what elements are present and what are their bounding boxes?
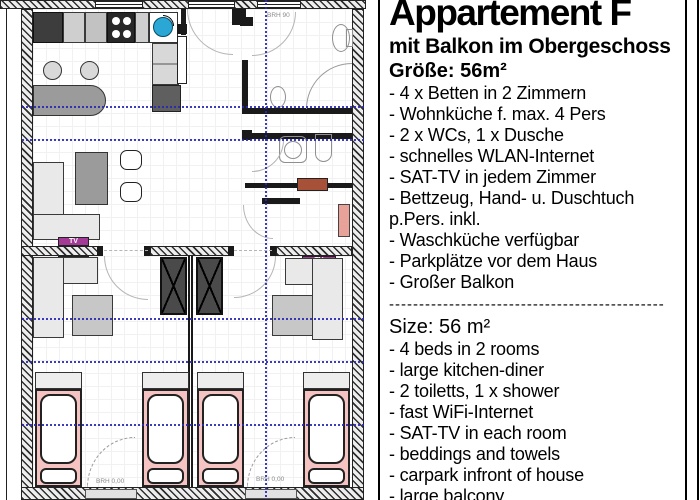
apartment-listing-image: TV TV TV bbox=[0, 0, 700, 500]
kitchen-sink bbox=[149, 12, 178, 43]
exterior-wall-bottom bbox=[21, 487, 364, 500]
bathroom-wall bbox=[245, 183, 297, 188]
bench bbox=[297, 178, 328, 191]
roof-guide-line bbox=[22, 318, 364, 320]
separator-line: ----------------------------------------… bbox=[389, 295, 679, 315]
kitchen-counter bbox=[135, 12, 149, 43]
door-jamb bbox=[270, 246, 276, 256]
feature-item-de: - Parkplätze vor dem Haus bbox=[389, 251, 679, 272]
burner-icon bbox=[112, 30, 120, 38]
bed-headboard bbox=[197, 372, 244, 389]
listing-info-panel: Appartement F mit Balkon im Obergeschoss… bbox=[378, 0, 687, 500]
bed-duvet bbox=[202, 394, 239, 464]
desk bbox=[72, 295, 113, 336]
wash-basin bbox=[270, 86, 286, 108]
bathroom-wall bbox=[242, 60, 248, 112]
listing-subtitle: mit Balkon im Obergeschoss bbox=[389, 35, 679, 59]
feature-item-en: - carpark infront of house bbox=[389, 465, 679, 486]
toilet-tank bbox=[346, 29, 353, 47]
bed-duvet bbox=[40, 394, 77, 464]
wash-basin-bowl bbox=[284, 141, 302, 159]
feature-item-de: - Bettzeug, Hand- u. Duschtuch p.Pers. i… bbox=[389, 188, 679, 230]
bed-pillow bbox=[308, 468, 345, 484]
tv-label: TV bbox=[58, 237, 89, 246]
bed bbox=[142, 372, 189, 487]
floor-plan: TV TV TV bbox=[0, 0, 378, 500]
bed-duvet bbox=[308, 394, 345, 464]
bed-pillow bbox=[40, 468, 77, 484]
threshold-dash bbox=[104, 250, 148, 251]
chair bbox=[120, 150, 142, 170]
feature-item-de: - 2 x WCs, 1 x Dusche bbox=[389, 125, 679, 146]
window bbox=[95, 1, 143, 8]
feature-item-de: - Waschküche verfügbar bbox=[389, 230, 679, 251]
feature-item-en: - fast WiFi-Internet bbox=[389, 402, 679, 423]
bed-headboard bbox=[35, 372, 82, 389]
feature-item-en: - 2 toiletts, 1 x shower bbox=[389, 381, 679, 402]
balcony-door-sill bbox=[245, 489, 297, 499]
sink-tap-icon bbox=[163, 15, 174, 26]
feature-item-de: - Großer Balkon bbox=[389, 272, 679, 293]
partition-wall bbox=[276, 246, 352, 256]
bed bbox=[35, 372, 82, 487]
window bbox=[257, 1, 301, 8]
bed bbox=[197, 372, 244, 487]
wardrobe-unit bbox=[33, 257, 64, 338]
door-jamb bbox=[144, 246, 150, 256]
roof-guide-line bbox=[22, 106, 364, 108]
feature-item-en: - large balcony bbox=[389, 486, 679, 500]
tall-cabinet bbox=[152, 43, 179, 85]
roof-guide-line bbox=[22, 361, 364, 363]
feature-item-de: - schnelles WLAN-Internet bbox=[389, 146, 679, 167]
bed-duvet bbox=[147, 394, 184, 464]
feature-item-en: - beddings and towels bbox=[389, 444, 679, 465]
window bbox=[188, 1, 235, 8]
feature-item-en: - large kitchen-diner bbox=[389, 360, 679, 381]
kitchen-counter bbox=[85, 12, 107, 43]
size-label-de: Größe: 56m² bbox=[389, 60, 679, 83]
wardrobe bbox=[196, 257, 223, 315]
door-jamb bbox=[97, 246, 103, 256]
desk bbox=[272, 295, 313, 336]
bed-pillow bbox=[202, 468, 239, 484]
listing-title: Appartement F bbox=[389, 0, 679, 34]
door-leaf bbox=[177, 36, 187, 84]
feature-item-en: - SAT-TV in each room bbox=[389, 423, 679, 444]
bed-headboard bbox=[142, 372, 189, 389]
bedroom-entry-wall bbox=[262, 198, 300, 204]
door-jamb bbox=[228, 246, 234, 256]
burner-icon bbox=[123, 17, 131, 25]
panel-outer-edge bbox=[697, 0, 699, 500]
wardrobe-unit bbox=[312, 258, 343, 340]
door-sill-label: BRH 0,00 bbox=[96, 478, 124, 485]
roof-guide-line bbox=[22, 424, 364, 426]
partition-wall bbox=[21, 246, 98, 256]
plan-frame-left bbox=[6, 0, 7, 500]
roof-guide-line bbox=[22, 139, 364, 141]
chair bbox=[80, 61, 99, 80]
feature-item-en: - 4 beds in 2 rooms bbox=[389, 339, 679, 360]
burner-icon bbox=[123, 30, 131, 38]
bench-salmon bbox=[338, 204, 350, 237]
sill-height-label: BRH 90 bbox=[267, 12, 290, 19]
balcony-door-sill bbox=[85, 489, 137, 499]
feature-item-de: - Wohnküche f. max. 4 Pers bbox=[389, 104, 679, 125]
wardrobe bbox=[160, 257, 187, 315]
burner-icon bbox=[112, 17, 120, 25]
coffee-table bbox=[75, 152, 108, 205]
size-label-en: Size: 56 m² bbox=[389, 316, 679, 339]
bathroom-wall bbox=[328, 183, 352, 188]
bed bbox=[303, 372, 350, 487]
stove bbox=[107, 12, 135, 43]
feature-item-de: - 4 x Betten in 2 Zimmern bbox=[389, 83, 679, 104]
door-jamb bbox=[177, 24, 187, 34]
chair bbox=[43, 61, 62, 80]
bed-headboard bbox=[303, 372, 350, 389]
chair bbox=[120, 182, 142, 202]
door-sill-label: BRH 0,00 bbox=[256, 476, 284, 483]
roof-guide-line bbox=[265, 0, 267, 497]
dining-table bbox=[33, 85, 106, 116]
fridge bbox=[33, 12, 63, 43]
feature-item-de: - SAT-TV in jedem Zimmer bbox=[389, 167, 679, 188]
exterior-wall-top bbox=[0, 0, 366, 9]
kitchen-counter bbox=[63, 12, 85, 43]
bed-pillow bbox=[147, 468, 184, 484]
partition-wall bbox=[150, 246, 229, 256]
